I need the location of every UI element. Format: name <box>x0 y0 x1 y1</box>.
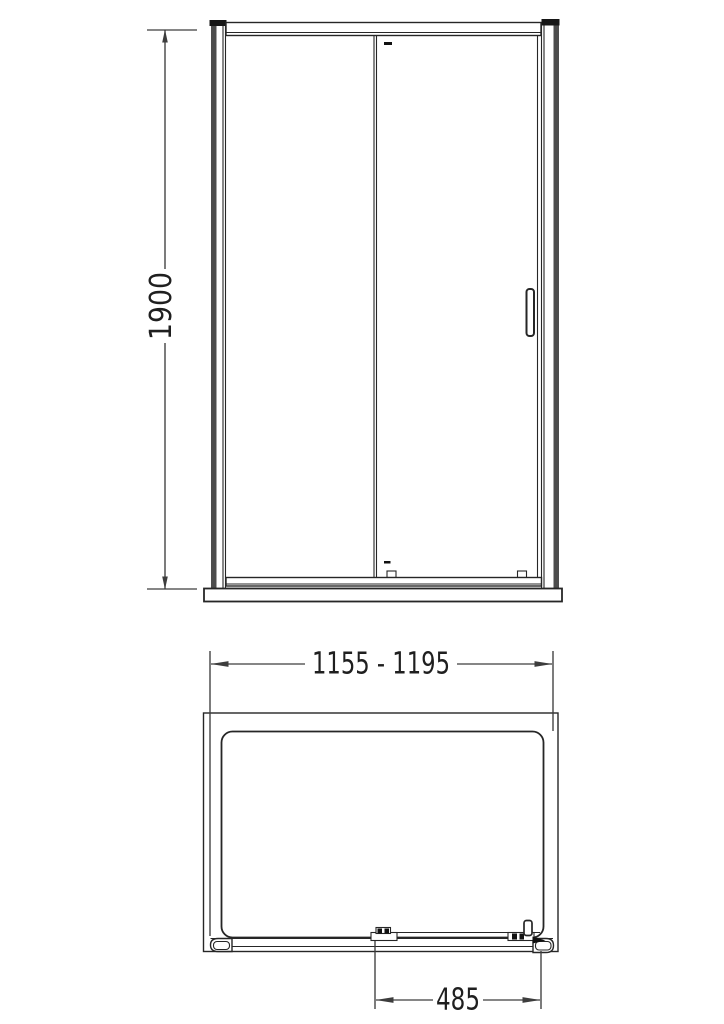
width-dimension-label: 1155 - 1195 <box>312 647 450 682</box>
left-profile-cap <box>210 20 227 26</box>
arrowhead-left <box>376 997 394 1003</box>
roller-cover-center <box>387 571 396 578</box>
right-profile-cap <box>542 19 560 26</box>
technical-drawing-page: 1900 <box>0 0 724 1024</box>
arrowhead-right <box>535 661 553 667</box>
left-frame-edge <box>223 26 226 589</box>
track-end-cap-left <box>211 939 233 952</box>
top-rail <box>226 23 541 36</box>
arrowhead-down <box>162 577 168 590</box>
door-handle-plan <box>524 921 532 936</box>
bottom-rail <box>226 578 542 587</box>
shower-door-drawing: 1900 <box>0 0 724 1024</box>
roller-cover-right <box>518 571 527 578</box>
arrowhead-right <box>523 997 541 1003</box>
arrowhead-up <box>162 30 168 43</box>
door-leading-stile <box>542 26 545 589</box>
height-dimension: 1900 <box>144 30 197 590</box>
top-guide-mark <box>384 42 392 45</box>
arrowhead-left <box>211 661 229 667</box>
height-dimension-label: 1900 <box>144 272 179 340</box>
left-wall-profile <box>211 20 217 589</box>
right-wall-profile <box>554 19 560 589</box>
front-elevation-view <box>204 19 562 602</box>
bottom-guide-mark <box>384 561 391 564</box>
shower-tray <box>204 589 562 602</box>
opening-dimension: 485 <box>375 941 541 1018</box>
plan-view <box>204 713 559 953</box>
panel-overlap-line <box>374 36 377 578</box>
tray-inner-edge <box>222 732 544 938</box>
door-handle <box>527 289 535 336</box>
opening-dimension-label: 485 <box>436 983 480 1018</box>
